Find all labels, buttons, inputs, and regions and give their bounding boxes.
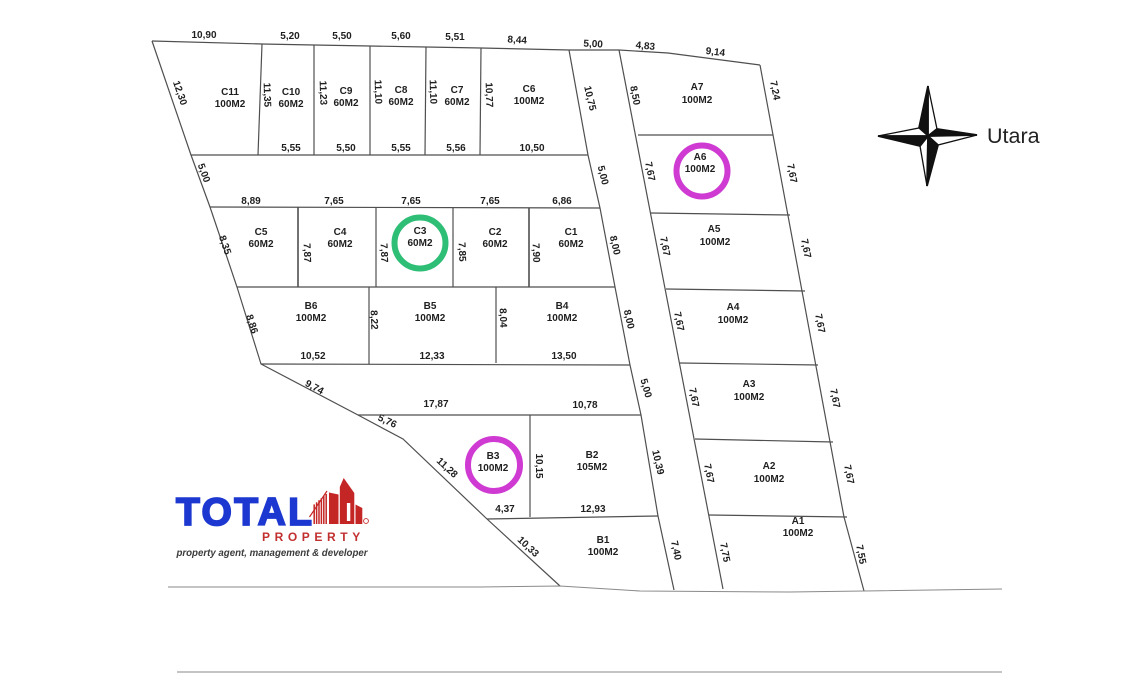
svg-text:8,89: 8,89 (241, 196, 261, 207)
svg-text:100M2: 100M2 (514, 96, 545, 107)
svg-text:C2: C2 (489, 227, 502, 238)
svg-text:7,90: 7,90 (530, 243, 542, 263)
svg-text:7,65: 7,65 (401, 196, 421, 207)
svg-text:60M2: 60M2 (558, 239, 583, 250)
svg-text:100M2: 100M2 (215, 99, 246, 110)
svg-text:8,04: 8,04 (497, 308, 509, 328)
svg-text:100M2: 100M2 (700, 237, 731, 248)
svg-text:5,56: 5,56 (446, 143, 466, 154)
svg-text:A2: A2 (763, 461, 776, 472)
svg-text:B2: B2 (586, 450, 599, 461)
svg-text:8,44: 8,44 (507, 34, 528, 46)
svg-text:5,55: 5,55 (281, 143, 301, 154)
svg-text:C3: C3 (414, 226, 427, 237)
svg-text:10,52: 10,52 (300, 351, 325, 362)
svg-text:5,60: 5,60 (391, 31, 411, 42)
svg-text:C9: C9 (340, 86, 353, 97)
svg-text:A5: A5 (708, 224, 721, 235)
svg-text:property agent, management & d: property agent, management & developer (175, 548, 368, 559)
svg-text:C8: C8 (395, 85, 408, 96)
svg-text:A1: A1 (792, 516, 805, 527)
svg-text:13,50: 13,50 (551, 351, 576, 362)
svg-text:TOTAL: TOTAL (176, 491, 314, 534)
svg-text:C7: C7 (451, 85, 464, 96)
svg-text:60M2: 60M2 (482, 239, 507, 250)
svg-text:B1: B1 (597, 535, 610, 546)
svg-text:100M2: 100M2 (415, 313, 446, 324)
svg-text:4,37: 4,37 (495, 504, 515, 515)
svg-text:60M2: 60M2 (444, 97, 469, 108)
svg-text:7,65: 7,65 (480, 196, 500, 207)
svg-text:A6: A6 (694, 152, 707, 163)
svg-text:11,35: 11,35 (261, 82, 273, 107)
svg-text:100M2: 100M2 (478, 463, 509, 474)
svg-text:10,50: 10,50 (519, 143, 544, 154)
svg-text:B4: B4 (556, 301, 569, 312)
svg-text:60M2: 60M2 (278, 99, 303, 110)
svg-text:B5: B5 (424, 301, 437, 312)
svg-text:100M2: 100M2 (734, 392, 765, 403)
svg-text:100M2: 100M2 (685, 164, 716, 175)
svg-text:105M2: 105M2 (577, 462, 608, 473)
svg-text:C11: C11 (221, 87, 239, 98)
svg-text:PROPERTY: PROPERTY (262, 530, 365, 544)
svg-text:7,87: 7,87 (301, 243, 313, 263)
svg-text:5,20: 5,20 (280, 31, 300, 42)
svg-text:A7: A7 (691, 82, 704, 93)
svg-text:60M2: 60M2 (248, 239, 273, 250)
svg-text:7,87: 7,87 (378, 243, 390, 263)
svg-text:100M2: 100M2 (682, 95, 713, 106)
svg-text:17,87: 17,87 (423, 399, 448, 410)
svg-text:C5: C5 (255, 227, 268, 238)
svg-text:C6: C6 (523, 84, 536, 95)
svg-text:100M2: 100M2 (547, 313, 578, 324)
svg-text:10,78: 10,78 (572, 400, 597, 411)
svg-text:5,50: 5,50 (332, 31, 352, 42)
svg-text:C4: C4 (334, 227, 347, 238)
svg-text:A3: A3 (743, 379, 756, 390)
svg-text:11,23: 11,23 (317, 80, 329, 105)
svg-text:60M2: 60M2 (388, 97, 413, 108)
svg-text:8,22: 8,22 (368, 310, 380, 330)
svg-text:7,85: 7,85 (456, 242, 468, 262)
svg-text:100M2: 100M2 (588, 547, 619, 558)
svg-text:7,65: 7,65 (324, 196, 344, 207)
svg-text:5,00: 5,00 (583, 39, 603, 51)
svg-text:60M2: 60M2 (407, 238, 432, 249)
svg-text:100M2: 100M2 (296, 313, 327, 324)
svg-text:B6: B6 (305, 301, 318, 312)
svg-text:C1: C1 (565, 227, 578, 238)
svg-text:A4: A4 (727, 302, 740, 313)
svg-text:100M2: 100M2 (718, 315, 749, 326)
svg-text:Utara: Utara (987, 124, 1040, 148)
svg-text:10,15: 10,15 (533, 453, 544, 478)
svg-text:5,50: 5,50 (336, 143, 356, 154)
svg-text:6,86: 6,86 (552, 196, 572, 207)
svg-text:60M2: 60M2 (327, 239, 352, 250)
svg-text:10,77: 10,77 (483, 82, 495, 108)
svg-text:B3: B3 (487, 451, 500, 462)
svg-text:60M2: 60M2 (333, 98, 358, 109)
svg-text:5,51: 5,51 (445, 32, 465, 43)
svg-text:5,55: 5,55 (391, 143, 411, 154)
svg-text:12,93: 12,93 (580, 504, 605, 515)
svg-text:100M2: 100M2 (783, 528, 814, 539)
svg-text:12,33: 12,33 (419, 351, 444, 362)
svg-text:10,90: 10,90 (191, 30, 216, 41)
svg-text:4,83: 4,83 (635, 40, 656, 53)
svg-text:11,10: 11,10 (427, 79, 439, 104)
svg-text:C10: C10 (282, 87, 301, 98)
svg-text:11,10: 11,10 (372, 79, 384, 104)
svg-text:100M2: 100M2 (754, 474, 785, 485)
